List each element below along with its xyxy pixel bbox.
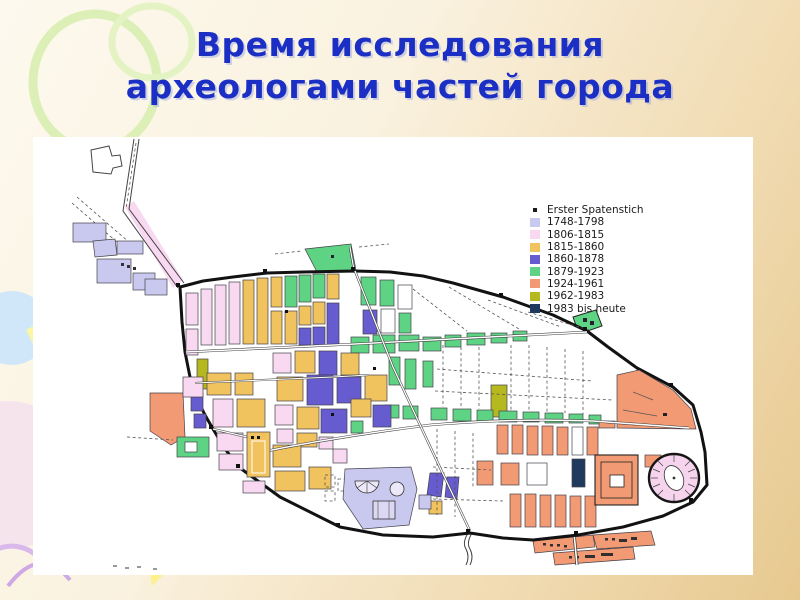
legend-item: 1860-1878 bbox=[530, 253, 644, 265]
legend-label: 1748-1798 bbox=[547, 216, 604, 228]
legend-item: 1815-1860 bbox=[530, 241, 644, 253]
legend-label: 1962-1983 bbox=[547, 290, 604, 302]
palaestra bbox=[595, 455, 638, 505]
nw-suburb bbox=[72, 139, 184, 295]
legend-label: 1860-1878 bbox=[547, 253, 604, 265]
legend-item: 1748-1798 bbox=[530, 216, 644, 228]
legend-label: 1879-1923 bbox=[547, 266, 604, 278]
quadriporticus bbox=[373, 501, 395, 519]
legend-color-swatch bbox=[530, 218, 540, 227]
legend-item: 1806-1815 bbox=[530, 229, 644, 241]
legend-label: Erster Spatenstich bbox=[547, 204, 644, 216]
legend-item: 1879-1923 bbox=[530, 265, 644, 277]
title-line-1: Время исследования bbox=[0, 24, 800, 66]
legend-label: 1815-1860 bbox=[547, 241, 604, 253]
slide-title: Время исследования археологами частей го… bbox=[0, 24, 800, 108]
navy-block bbox=[572, 459, 585, 487]
legend-color-swatch bbox=[530, 267, 540, 276]
legend-item: 1962-1983 bbox=[530, 290, 644, 302]
legend-color-swatch bbox=[530, 243, 540, 252]
legend-color-swatch bbox=[530, 304, 540, 313]
forum bbox=[247, 432, 270, 477]
legend-label: 1983 bis heute bbox=[547, 303, 626, 315]
legend-color-swatch bbox=[530, 292, 540, 301]
pompeii-map bbox=[33, 137, 753, 575]
map-panel: Erster Spatenstich1748-17981806-18151815… bbox=[33, 137, 753, 575]
legend-color-swatch bbox=[530, 230, 540, 239]
odeon bbox=[390, 482, 404, 496]
legend-item: 1924-1961 bbox=[530, 278, 644, 290]
legend-item: Erster Spatenstich bbox=[530, 204, 644, 216]
legend-color-swatch bbox=[530, 279, 540, 288]
amphitheater bbox=[649, 454, 699, 502]
legend-color-swatch bbox=[530, 255, 540, 264]
slide: { "slide": { "title_line1": "Время иссле… bbox=[0, 0, 800, 600]
legend-label: 1924-1961 bbox=[547, 278, 604, 290]
legend: Erster Spatenstich1748-17981806-18151815… bbox=[530, 204, 644, 315]
legend-dot-swatch bbox=[530, 206, 540, 215]
legend-label: 1806-1815 bbox=[547, 229, 604, 241]
title-line-2: археологами частей города bbox=[0, 66, 800, 108]
legend-item: 1983 bis heute bbox=[530, 302, 644, 314]
